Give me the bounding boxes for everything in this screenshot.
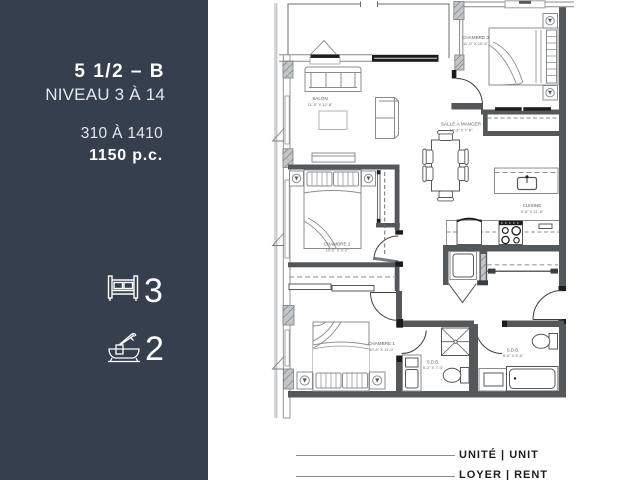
svg-text:S.D.B.: S.D.B. xyxy=(507,348,520,353)
svg-text:6'-6" X 5'-6": 6'-6" X 5'-6" xyxy=(503,353,524,358)
svg-text:10'-3" X 7'-6": 10'-3" X 7'-6" xyxy=(449,128,473,133)
svg-text:11'-0" X 12'-8": 11'-0" X 12'-8" xyxy=(308,102,334,107)
svg-text:10'-0" X 9'-2": 10'-0" X 9'-2" xyxy=(325,248,349,253)
svg-text:11'-0" X 10'-6": 11'-0" X 10'-6" xyxy=(463,41,489,46)
svg-text:S.D.B.: S.D.B. xyxy=(427,360,440,365)
svg-text:CHAMBRE 1: CHAMBRE 1 xyxy=(368,341,395,346)
svg-text:9'-6" X 11'-6": 9'-6" X 11'-6" xyxy=(521,209,544,214)
svg-text:10'-9" X 11'-0": 10'-9" X 11'-0" xyxy=(369,347,395,352)
svg-text:CHAMBRE 2: CHAMBRE 2 xyxy=(324,242,351,247)
svg-text:SALON: SALON xyxy=(312,96,328,101)
svg-text:6'-2" X 7'-0": 6'-2" X 7'-0" xyxy=(423,365,444,370)
svg-text:SALLE À MANGER: SALLE À MANGER xyxy=(441,121,482,127)
svg-text:CUISINE: CUISINE xyxy=(523,203,542,208)
svg-text:CHAMBRE 3: CHAMBRE 3 xyxy=(462,35,489,40)
